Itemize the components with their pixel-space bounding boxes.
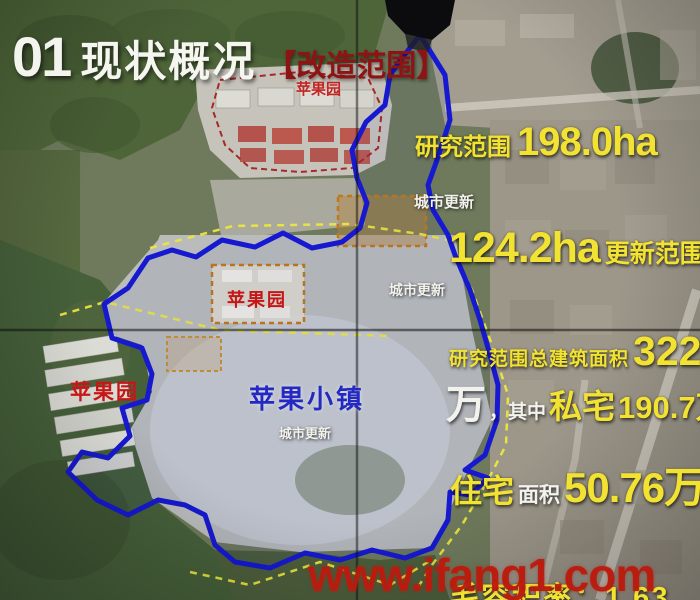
stat-research-scope: 研究范围 198.0ha xyxy=(415,120,657,165)
renewal-scope-value: 124.2ha xyxy=(449,224,600,273)
residence-label: 住宅 xyxy=(450,466,514,512)
total-floor-label: 研究范围总建筑面积 xyxy=(449,344,629,371)
stat-residence-area: 住宅 面积 50.76万 xyxy=(450,454,700,515)
qizhong-text: ，其中 xyxy=(489,397,546,424)
label-urban-renewal-3: 城市更新 xyxy=(279,423,331,442)
stat-renewal-scope: 124.2ha 更新范围 xyxy=(449,224,700,273)
presentation-slide: 01 现状概况 【改造范围】 苹果园 苹果园 苹果园 苹果小镇 城市更新 城市更… xyxy=(0,0,700,600)
residence-value: 50.76万 xyxy=(564,454,700,515)
label-apple-garden-top: 苹果园 xyxy=(296,78,341,99)
total-floor-value: 322 xyxy=(633,328,700,375)
watermark-text: www.ifang1.com xyxy=(308,548,655,600)
label-apple-town: 苹果小镇 xyxy=(249,379,365,416)
title-bracket: 【改造范围】 xyxy=(266,41,446,85)
research-scope-value: 198.0ha xyxy=(517,120,657,165)
research-scope-label: 研究范围 xyxy=(415,127,511,162)
label-apple-garden-mid: 苹果园 xyxy=(227,286,287,312)
label-apple-garden-left: 苹果园 xyxy=(70,376,139,406)
title-text: 现状概况 xyxy=(80,28,256,89)
residence-area-label: 面积 xyxy=(518,479,560,509)
private-home-label: 私宅 xyxy=(549,380,615,428)
private-home-value: 190.7万 xyxy=(618,382,700,427)
slide-title: 01 现状概况 【改造范围】 xyxy=(12,24,446,89)
label-urban-renewal-1: 城市更新 xyxy=(414,191,474,212)
label-urban-renewal-2: 城市更新 xyxy=(389,280,445,300)
renewal-scope-label: 更新范围 xyxy=(605,234,700,270)
stat-total-floor-area: 研究范围总建筑面积 322 xyxy=(449,328,700,375)
total-floor-unit: 万 xyxy=(446,372,486,430)
title-number: 01 xyxy=(12,24,70,89)
stat-private-home: 万 ，其中 私宅 190.7万 xyxy=(446,372,700,430)
